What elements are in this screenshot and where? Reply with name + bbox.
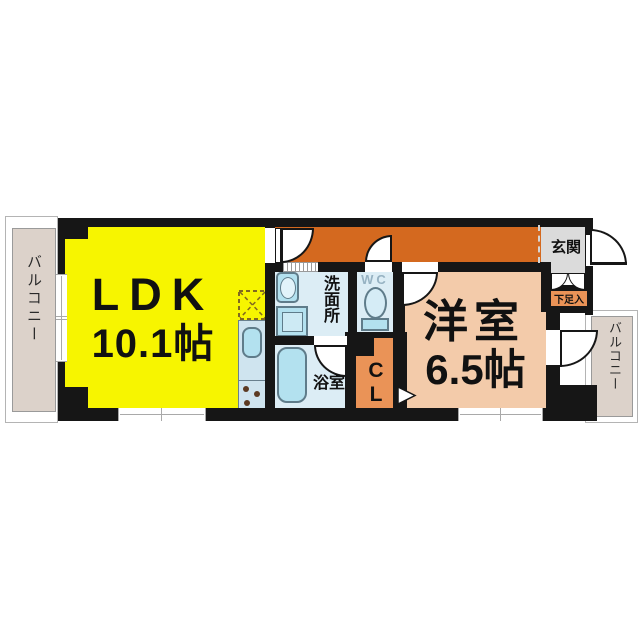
entrance-door-leaf: [590, 262, 627, 264]
entrance-door-arc: [590, 229, 627, 265]
washbasin-bowl: [280, 277, 296, 299]
western-south-window: [458, 408, 543, 421]
washing-machine-pan: [276, 306, 308, 337]
entrance-label: 玄関: [543, 238, 589, 255]
pillar-top-left: [58, 218, 88, 239]
balcony-right-label: バルコニー: [605, 321, 624, 413]
closet-step: [374, 338, 395, 356]
floorplan-image: バルコニー バルコニー: [0, 0, 640, 640]
pillar-bottom-left: [58, 387, 88, 412]
toilet-tank: [361, 318, 389, 331]
washroom-sliding-door: [283, 262, 318, 272]
pillar-bottom-right: [560, 385, 597, 414]
balcony-left-label: バルコニー: [23, 254, 44, 394]
washing-machine: [282, 312, 303, 332]
counter-divider: [238, 380, 267, 381]
closet-label-l: L: [370, 383, 383, 407]
washbasin: [276, 272, 299, 303]
ldk-south-window: [118, 408, 206, 421]
bathtub: [277, 347, 307, 403]
bathroom-door-opening: [314, 336, 347, 345]
toilet-bowl: [364, 287, 387, 319]
washroom-label: 洗面所: [317, 275, 341, 329]
stove-burner-dot: [254, 391, 260, 397]
bathroom-label: 浴室: [306, 372, 352, 390]
ldk-hallway-opening: [265, 228, 275, 263]
western-room-size-label: 6.5帖: [398, 343, 553, 389]
closet-label: C L: [358, 358, 394, 408]
outer-wall-top: [58, 218, 593, 227]
toilet-label: WC: [352, 271, 398, 287]
western-door-opening: [402, 262, 438, 272]
hallway-entrance-divider: [538, 225, 540, 263]
stove-burner-dot: [244, 400, 250, 406]
ldk-size-label: 10.1帖: [58, 318, 248, 362]
shoe-cabinet-label: 下足入: [550, 290, 588, 307]
western-room-label: 洋室: [400, 293, 548, 341]
stove-burner-dot: [243, 386, 249, 392]
closet-label-c: C: [368, 359, 383, 383]
